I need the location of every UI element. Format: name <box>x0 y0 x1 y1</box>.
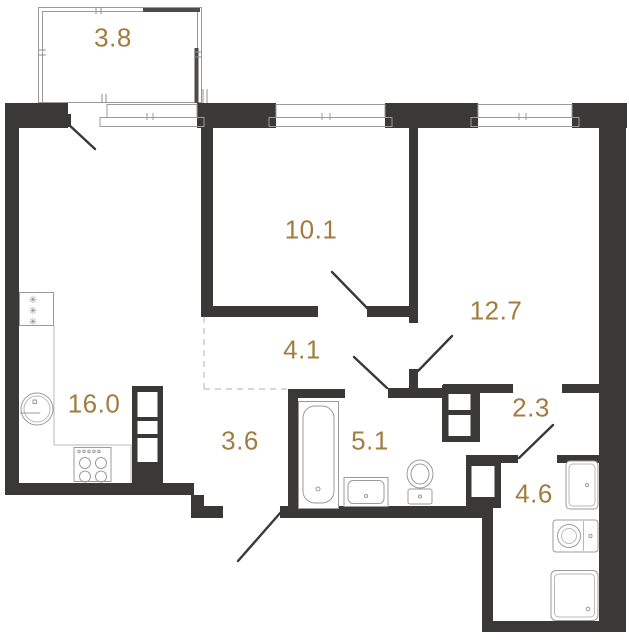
floor-plan-drawing: ✳ ✳ ✳ <box>0 0 629 640</box>
shower-room-door-swing <box>519 425 553 458</box>
washbasin-icon <box>344 478 388 507</box>
bathroom-door-swing <box>354 357 387 388</box>
balcony-glazing <box>38 7 202 103</box>
window-opening <box>107 103 197 128</box>
entrance-door-swing <box>238 512 281 561</box>
room-label-hallway: 4.1 <box>283 335 321 366</box>
fridge-icon: ✳ ✳ ✳ <box>20 293 54 329</box>
wall-segment <box>201 306 318 317</box>
wall-segment <box>599 103 626 632</box>
toilet-icon <box>407 460 433 504</box>
sink-icon <box>566 461 598 509</box>
shaft-opening <box>138 421 158 434</box>
wall-segment <box>482 506 493 632</box>
room-label-inner-hall: 2.3 <box>512 393 550 424</box>
wall-segment <box>202 506 223 518</box>
wall-segment <box>409 128 418 323</box>
room-label-kitchen-living: 16.0 <box>68 389 121 420</box>
bedroom-2-door-swing <box>418 336 452 371</box>
wall-tick-marks <box>102 89 207 103</box>
wall-segment <box>482 621 626 632</box>
walls <box>5 103 627 632</box>
bathtub-outer <box>299 402 339 509</box>
room-label-shower-room: 4.6 <box>515 479 553 510</box>
toilet-tank <box>408 489 432 504</box>
shaft-opening <box>138 392 158 417</box>
shaft-opening <box>449 394 471 410</box>
open-boundary-dashed <box>204 317 288 389</box>
shaft-opening <box>138 438 158 462</box>
window-opening <box>478 103 572 128</box>
room-label-entry-hall: 3.6 <box>221 426 259 457</box>
room-label-bathroom: 5.1 <box>351 426 389 457</box>
room-label-bedroom-1: 10.1 <box>285 215 338 246</box>
wall-segment <box>388 388 447 398</box>
room-label-bedroom-2: 12.7 <box>470 296 523 327</box>
wall-segment <box>288 389 298 518</box>
kitchen-sink-icon <box>20 393 53 425</box>
window-bedroom-1 <box>269 103 392 128</box>
bedroom-1-door-swing <box>332 272 370 311</box>
wall-segment <box>197 103 276 128</box>
balcony-slab-edge <box>195 48 199 103</box>
shower-icon <box>551 571 598 621</box>
wall-segment <box>385 103 478 128</box>
wall-segment <box>5 483 194 495</box>
floor-plan: ✳ ✳ ✳ <box>0 0 629 640</box>
window-bedroom-2 <box>471 103 579 128</box>
washbasin-outer <box>344 478 388 507</box>
stove-icon <box>74 448 111 483</box>
wall-segment <box>562 384 599 393</box>
balcony-door-swing <box>67 123 95 149</box>
snowflake-glyph: ✳ <box>29 295 37 306</box>
wall-segment <box>5 103 19 495</box>
shower-tray <box>551 571 598 621</box>
washer-body <box>553 520 598 552</box>
balcony-slab-edge <box>143 8 200 12</box>
tick-marks <box>102 89 207 103</box>
washing-machine-icon <box>553 520 598 552</box>
sink-outer <box>566 461 598 509</box>
window-kitchen <box>100 103 204 128</box>
snowflake-glyph: ✳ <box>29 317 37 328</box>
room-label-balcony: 3.8 <box>94 23 132 54</box>
shaft-opening <box>472 466 495 497</box>
wall-segment <box>201 128 213 317</box>
sink-bowl <box>21 393 53 425</box>
snowflake-glyph: ✳ <box>29 306 37 317</box>
bathtub-icon <box>299 402 339 509</box>
shaft-opening <box>449 415 471 436</box>
